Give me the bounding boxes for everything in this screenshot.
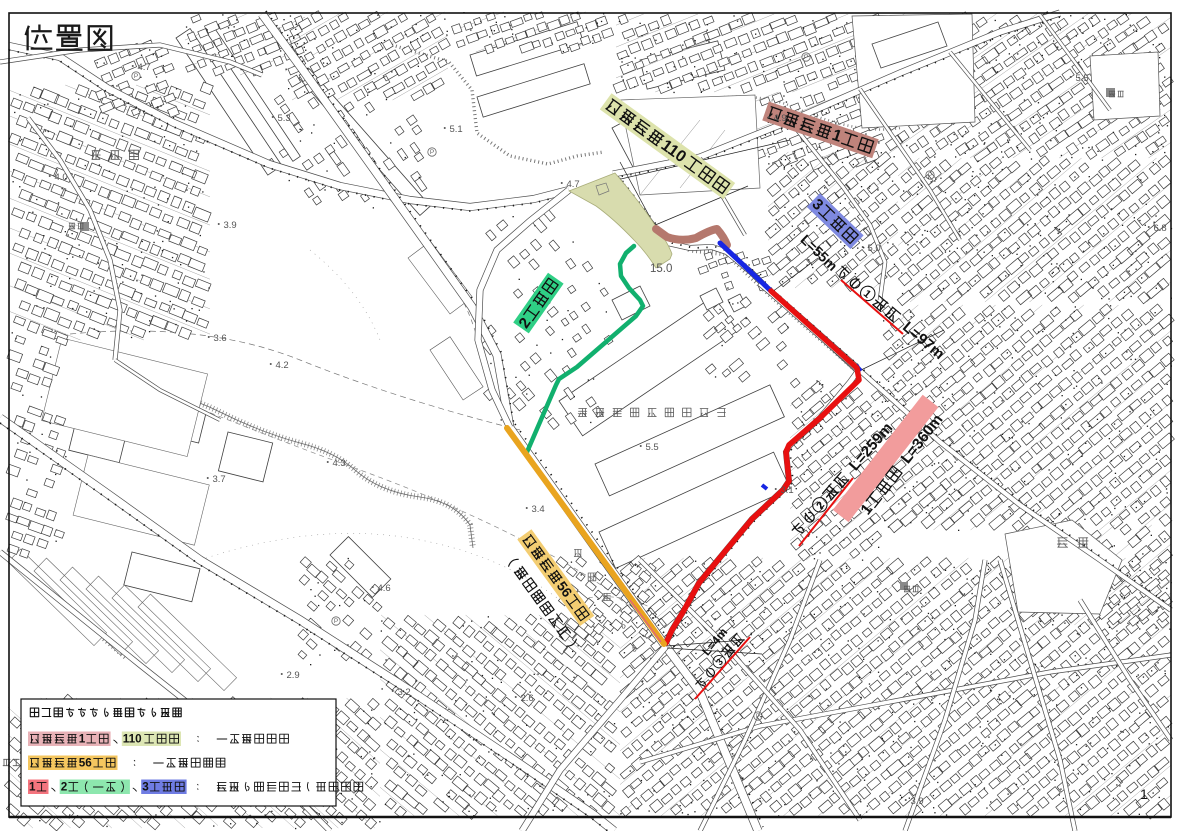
svg-text:56: 56 (79, 757, 93, 770)
svg-text:・4.7: ・4.7 (128, 62, 151, 73)
svg-text:・2.9: ・2.9 (277, 670, 300, 681)
svg-text:3: 3 (142, 781, 149, 794)
svg-text:P: P (430, 149, 434, 156)
svg-text:P: P (804, 54, 808, 61)
svg-text:P: P (334, 618, 338, 625)
svg-text:1: 1 (1140, 786, 1148, 802)
svg-text:P: P (928, 172, 932, 179)
svg-text:・3.4: ・3.4 (522, 504, 545, 515)
svg-text:・5.3: ・5.3 (268, 113, 291, 124)
svg-text:P: P (756, 713, 760, 720)
svg-text:・4.2: ・4.2 (266, 360, 289, 371)
svg-text:・5.1: ・5.1 (440, 124, 463, 135)
svg-text:・3.7: ・3.7 (203, 474, 226, 485)
svg-text:・5.0: ・5.0 (858, 243, 881, 254)
svg-text:・4.3: ・4.3 (323, 458, 346, 469)
svg-text:・4.6: ・4.6 (368, 583, 391, 594)
svg-text:・3.9: ・3.9 (214, 220, 237, 231)
svg-text:・4.7: ・4.7 (557, 179, 580, 190)
svg-text:・4.9: ・4.9 (764, 113, 787, 124)
svg-text:15.0: 15.0 (650, 263, 672, 275)
svg-text:1: 1 (29, 781, 36, 794)
svg-text:P: P (134, 73, 138, 80)
svg-text:・3.9: ・3.9 (901, 796, 924, 807)
svg-text:・6.8: ・6.8 (1144, 223, 1167, 234)
svg-text:・3.1: ・3.1 (771, 485, 794, 496)
svg-text:・2.6: ・2.6 (511, 693, 534, 704)
svg-text:2: 2 (61, 781, 68, 794)
svg-text:・4.0: ・4.0 (45, 172, 68, 183)
svg-text:・3.2: ・3.2 (388, 687, 411, 698)
svg-text:・5.5: ・5.5 (1066, 73, 1089, 84)
svg-text:1: 1 (79, 733, 86, 746)
svg-text:110: 110 (123, 733, 142, 746)
svg-text:・3.6: ・3.6 (204, 333, 227, 344)
svg-text:・5.5: ・5.5 (636, 442, 659, 453)
